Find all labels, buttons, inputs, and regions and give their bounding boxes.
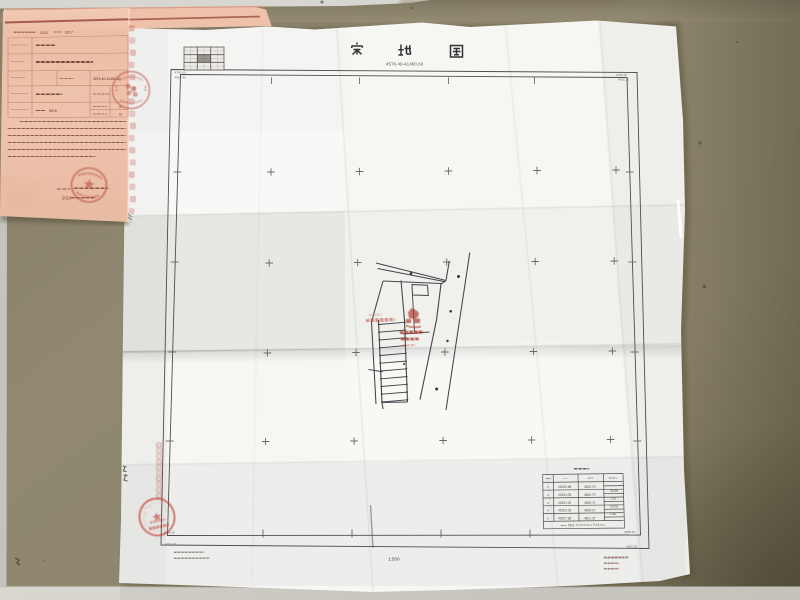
svg-text:41509.86: 41509.86 — [558, 485, 572, 489]
svg-text:41507.86: 41507.86 — [558, 516, 572, 520]
svg-text:2.80: 2.80 — [610, 512, 616, 516]
svg-text:m: m — [119, 113, 122, 117]
svg-text:95.6: 95.6 — [49, 108, 58, 113]
svg-text:15.38: 15.38 — [610, 489, 618, 493]
svg-text:4700.00: 4700.00 — [175, 71, 186, 75]
svg-text:95.6: 95.6 — [568, 523, 574, 527]
svg-text:4576.40-41460.60: 4576.40-41460.60 — [386, 61, 424, 66]
svg-text:4700.00: 4700.00 — [616, 73, 627, 77]
svg-text:2010: 2010 — [62, 196, 72, 201]
svg-text:2010: 2010 — [40, 31, 48, 35]
svg-text:4598.40: 4598.40 — [175, 76, 186, 80]
svg-text:4603.70: 4603.70 — [584, 485, 596, 489]
svg-text:0017: 0017 — [65, 31, 73, 35]
svg-text:41504.05: 41504.05 — [558, 493, 572, 497]
svg-text:4101.20: 4101.20 — [618, 78, 629, 82]
svg-text:1:500: 1:500 — [388, 557, 400, 562]
svg-text:4100.20: 4100.20 — [626, 545, 637, 549]
svg-text:15.08: 15.08 — [610, 504, 618, 508]
svg-text:41501.32: 41501.32 — [558, 501, 572, 505]
svg-text:2.81: 2.81 — [610, 497, 616, 501]
svg-text:4601.37: 4601.37 — [584, 516, 596, 520]
svg-text:0.14: 0.14 — [593, 523, 599, 527]
svg-text:4595.71: 4595.71 — [584, 501, 596, 505]
svg-text:4598.40: 4598.40 — [624, 530, 635, 534]
svg-text:4600.79: 4600.79 — [584, 493, 596, 497]
svg-text:4594.07: 4594.07 — [584, 509, 596, 513]
svg-text:41503.00: 41503.00 — [558, 509, 572, 513]
svg-text:4100.20: 4100.20 — [165, 542, 176, 546]
